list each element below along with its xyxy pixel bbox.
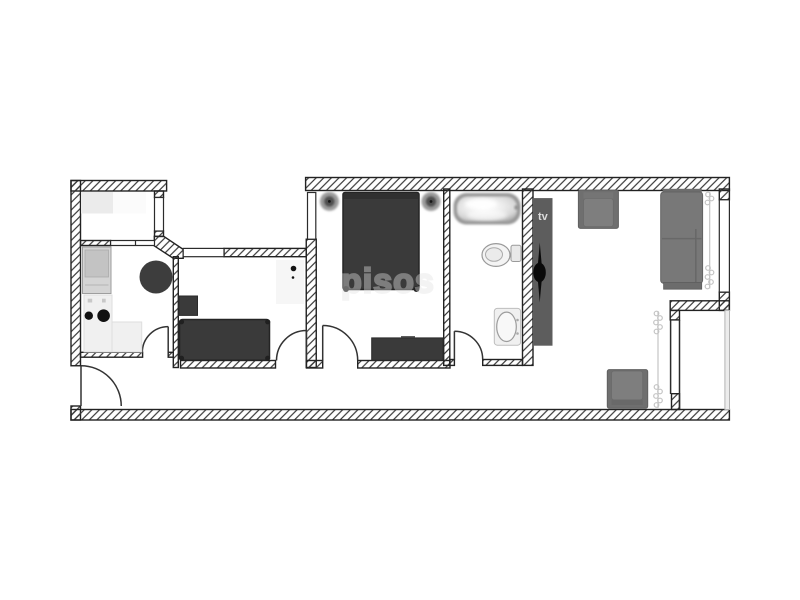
svg-text:tv: tv: [538, 211, 549, 223]
svg-text:pisos: pisos: [341, 262, 435, 300]
